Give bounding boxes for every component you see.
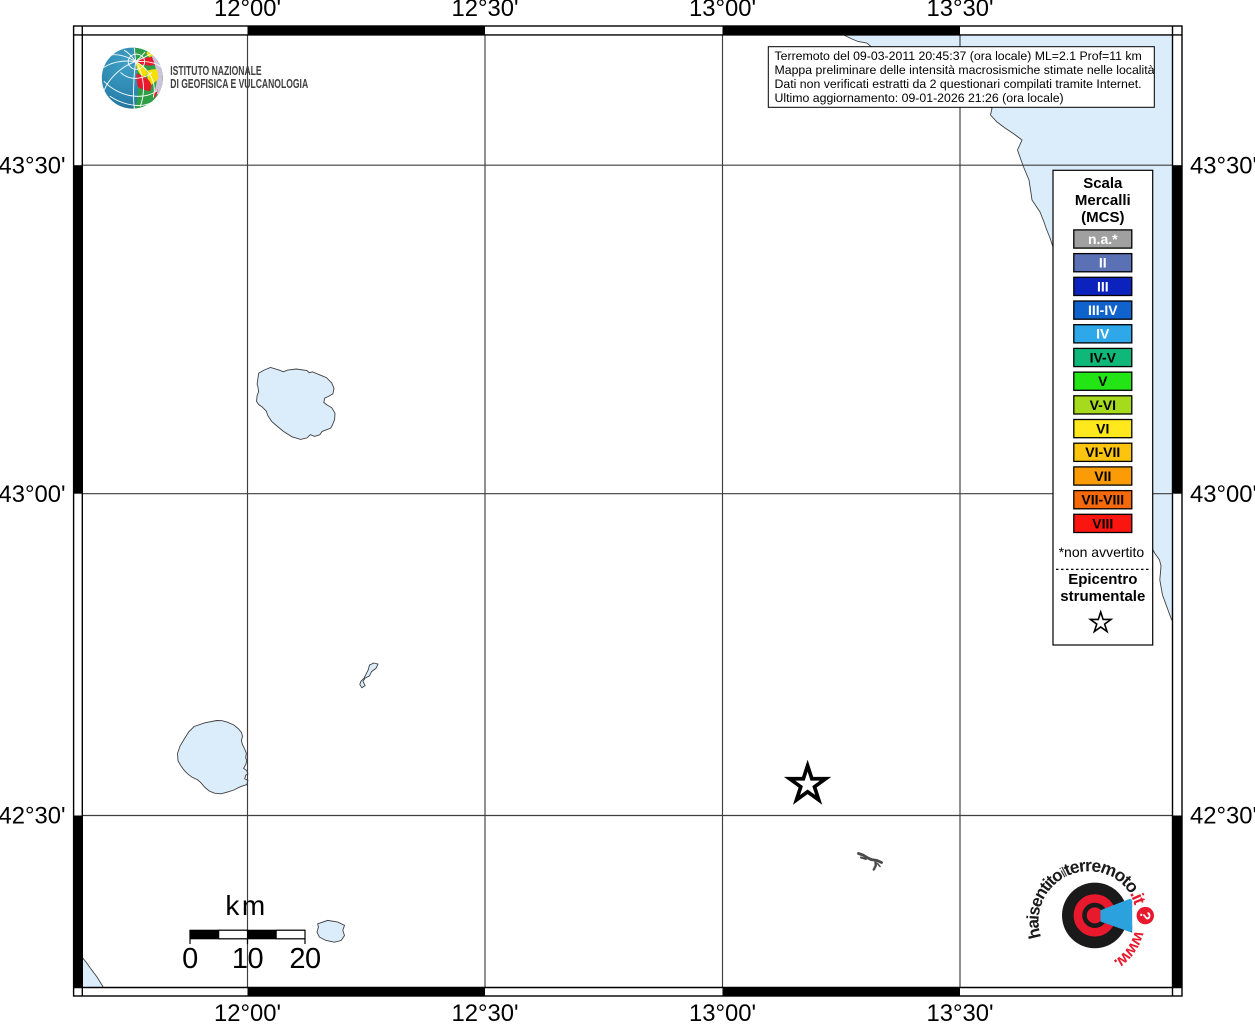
svg-text:Mappa preliminare delle intens: Mappa preliminare delle intensità macros… [775, 63, 1155, 77]
svg-text:20: 20 [289, 943, 320, 975]
svg-text:*non avvertito: *non avvertito [1059, 544, 1145, 560]
svg-text:43°30': 43°30' [1190, 152, 1255, 179]
svg-text:Epicentro: Epicentro [1068, 571, 1137, 588]
svg-text:III: III [1097, 278, 1109, 294]
svg-text:Scala: Scala [1083, 175, 1123, 192]
svg-text:12°30': 12°30' [452, 0, 519, 22]
svg-text:VI: VI [1096, 421, 1109, 437]
svg-text:Ultimo aggiornamento: 09-01-20: Ultimo aggiornamento: 09-01-2026 21:26 (… [775, 91, 1064, 105]
svg-text:10: 10 [232, 943, 263, 975]
svg-text:strumentale: strumentale [1060, 588, 1145, 605]
svg-text:0: 0 [182, 943, 198, 975]
svg-text:V-VI: V-VI [1090, 397, 1116, 413]
svg-text:IV: IV [1096, 326, 1110, 342]
svg-text:13°00': 13°00' [689, 0, 756, 22]
svg-text:ISTITUTO NAZIONALE: ISTITUTO NAZIONALE [170, 64, 261, 78]
svg-text:III-IV: III-IV [1088, 302, 1118, 318]
svg-text:Dati non verificati estratti d: Dati non verificati estratti da 2 questi… [775, 77, 1142, 91]
svg-text:VIII: VIII [1092, 515, 1113, 531]
svg-text:IV-V: IV-V [1090, 349, 1117, 365]
svg-text:V: V [1098, 373, 1108, 389]
svg-text:DI GEOFISICA E VULCANOLOGIA: DI GEOFISICA E VULCANOLOGIA [170, 78, 308, 92]
svg-text:VII-VIII: VII-VIII [1081, 492, 1124, 508]
svg-text:13°00': 13°00' [689, 1000, 756, 1024]
svg-text:Mercalli: Mercalli [1075, 192, 1131, 209]
svg-text:km: km [225, 890, 267, 921]
svg-text:43°30': 43°30' [0, 152, 66, 179]
svg-text:42°30': 42°30' [1190, 803, 1255, 830]
svg-text:(MCS): (MCS) [1081, 209, 1124, 226]
svg-text:43°00': 43°00' [1190, 481, 1255, 508]
svg-text:12°00': 12°00' [214, 1000, 281, 1024]
svg-text:II: II [1099, 255, 1107, 271]
svg-text:VII: VII [1094, 468, 1111, 484]
svg-text:43°00': 43°00' [0, 481, 66, 508]
svg-text:VI-VII: VI-VII [1085, 444, 1120, 460]
svg-text:42°30': 42°30' [0, 803, 66, 830]
svg-text:Terremoto del 09-03-2011 20:45: Terremoto del 09-03-2011 20:45:37 (ora l… [775, 49, 1142, 63]
svg-text:?: ? [1136, 910, 1153, 921]
svg-text:12°30': 12°30' [452, 1000, 519, 1024]
svg-text:12°00': 12°00' [214, 0, 281, 22]
svg-text:13°30': 13°30' [927, 1000, 994, 1024]
svg-text:n.a.*: n.a.* [1088, 231, 1118, 247]
svg-text:13°30': 13°30' [927, 0, 994, 22]
